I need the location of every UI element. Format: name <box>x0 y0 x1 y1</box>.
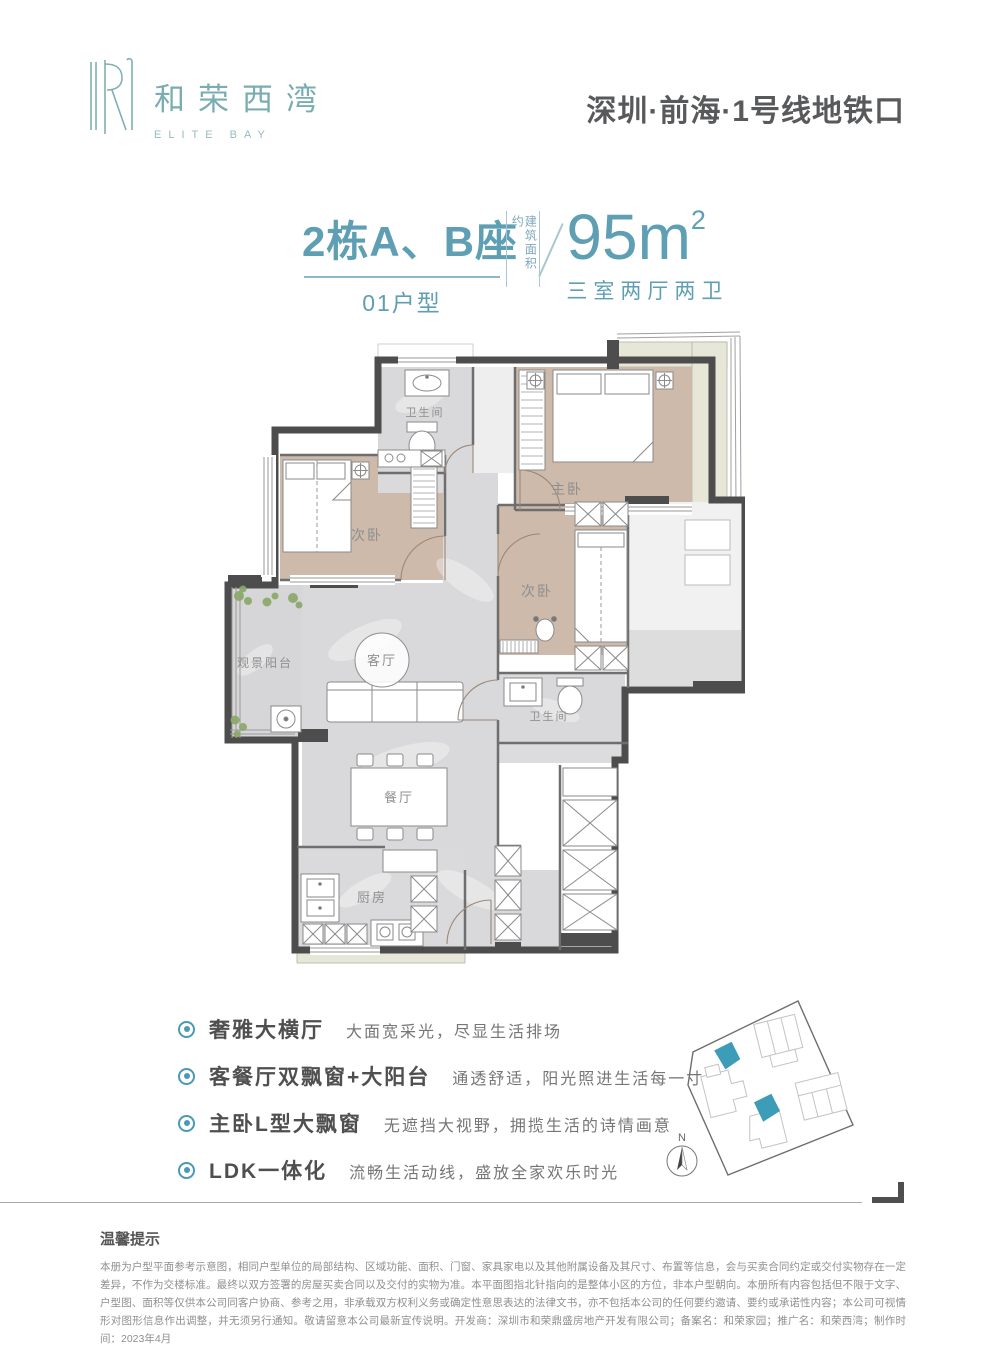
site-plan: N <box>648 995 913 1195</box>
area-note-label: 建筑面积约 <box>506 211 540 287</box>
footer-divider <box>0 1202 862 1203</box>
compass-icon: N <box>667 1132 697 1176</box>
balcony-items <box>271 706 301 732</box>
logo-name-en: ELITE BAY <box>154 129 330 141</box>
second-bed <box>283 460 351 552</box>
feature-bullet-icon <box>178 1068 195 1085</box>
room-label-bath2: 卫生间 <box>530 709 569 723</box>
area-value: 95m2 <box>566 205 728 269</box>
unit-title-block: 2栋A、B座 01户型 <box>302 208 502 318</box>
room-label-living: 客厅 <box>367 653 397 668</box>
feature-desc: 大面宽采光，尽显生活排场 <box>346 1018 562 1042</box>
area-sup: 2 <box>691 205 706 235</box>
feature-desc: 流畅生活动线，盛放全家欢乐时光 <box>349 1159 619 1183</box>
unit-type: 01户型 <box>302 284 502 318</box>
logo-mark-icon <box>88 56 136 136</box>
feature-bullet-icon <box>178 1115 195 1132</box>
slash-divider <box>539 223 564 277</box>
feature-title: LDK一体化 <box>209 1155 327 1185</box>
feature-desc: 无遮挡大视野，拥揽生活的诗情画意 <box>384 1112 672 1136</box>
room-label-master: 主卧 <box>551 481 583 497</box>
notice-body: 本册为户型平面参考示意图，相同户型单位的局部结构、区域功能、面积、门窗、家具家电… <box>100 1258 906 1348</box>
room-label-dining: 餐厅 <box>384 790 414 805</box>
floorplan: 卫生间 主卧 次卧 次卧 观景阳台 客厅 卫生间 餐厅 厨房 <box>215 330 745 970</box>
feature-title: 主卧L型大飘窗 <box>209 1108 362 1138</box>
notice-section: 温馨提示 本册为户型平面参考示意图，相同户型单位的局部结构、区域功能、面积、门窗… <box>100 1228 906 1348</box>
north-label: N <box>678 1132 686 1144</box>
area-block: 建筑面积约 95m2 三室两厅两卫 <box>506 205 728 305</box>
room-label-bath1: 卫生间 <box>406 405 445 419</box>
brand-logo: 和荣西湾 ELITE BAY <box>88 56 330 141</box>
room-label-balcony: 观景阳台 <box>237 655 293 670</box>
room-label-bed3: 次卧 <box>521 583 553 599</box>
building-title: 2栋A、B座 <box>302 208 502 269</box>
feature-title: 客餐厅双飘窗+大阳台 <box>209 1061 430 1091</box>
feature-bullet-icon <box>178 1021 195 1038</box>
logo-name-cn: 和荣西湾 <box>154 74 330 119</box>
laundry-strip <box>378 450 445 467</box>
title-underline <box>304 276 500 278</box>
room-label-bed2: 次卧 <box>351 527 383 543</box>
sofa <box>327 682 463 722</box>
feature-bullet-icon <box>178 1162 195 1179</box>
notice-title: 温馨提示 <box>100 1228 906 1249</box>
room-layout: 三室两厅两卫 <box>566 275 728 305</box>
master-bed <box>553 370 653 462</box>
corner-bracket <box>872 1182 904 1203</box>
room-label-kitchen: 厨房 <box>357 890 387 905</box>
third-bed <box>575 530 627 642</box>
area-number: 95m <box>566 201 691 273</box>
header-location: 深圳·前海·1号线地铁口 <box>586 86 905 130</box>
feature-title: 奢雅大横厅 <box>209 1014 324 1044</box>
